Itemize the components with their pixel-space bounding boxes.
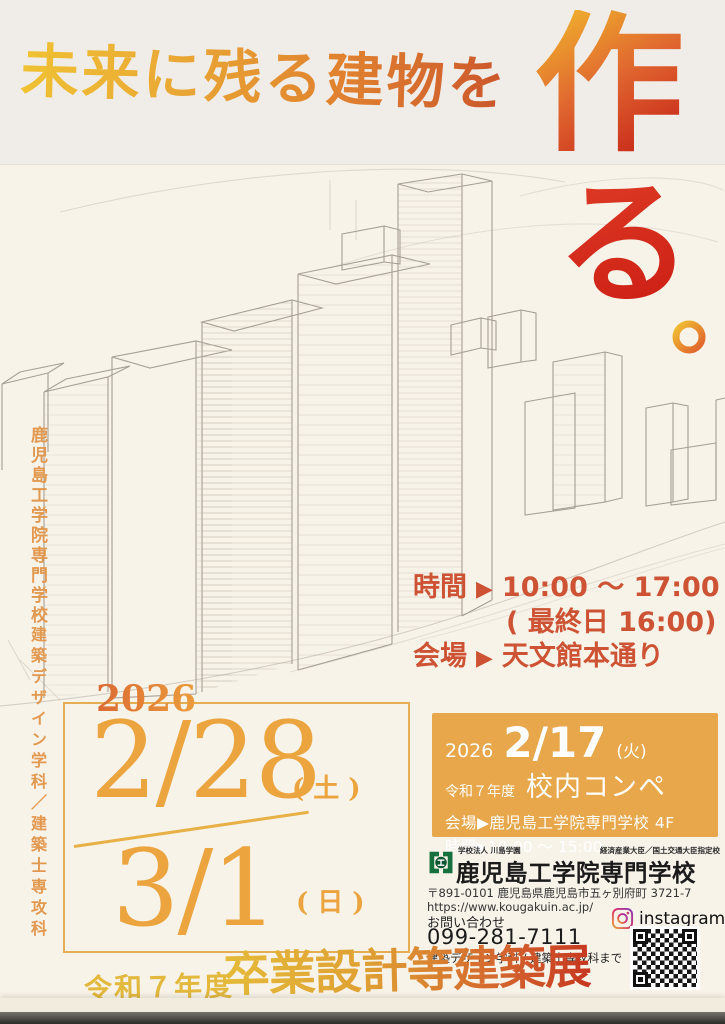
arrow-right-icon: ▶ [476,645,493,673]
photo-bottom-band [0,1012,725,1024]
main-date-1: 2/28 [90,708,320,814]
qr-finder-mark [633,972,648,987]
compe-title-row: 令和７年度 校内コンペ [445,765,705,804]
main-date-2-weekday: (日) [296,882,374,919]
footer-title: 卒業設計等建築展 [222,928,591,1005]
school-address: 〒891-0101 鹿児島県鹿児島市五ヶ別府町 3721-7 [427,887,691,901]
exhibition-poster: 未来に残る建物を 作 る 鹿児島工学院専門学校 建築デザイン学科／建築士専攻科 … [0,0,725,1024]
campus-compe-box: 2026 2/17 (火) 令和７年度 校内コンペ 会場▶鹿児島工学院専門学校 … [432,713,718,837]
qr-code [633,929,697,987]
compe-era: 令和７年度 [445,781,515,801]
event-venue-row: 会場 ▶ 天文館本通り [413,640,720,675]
time-value: 10:00 ～ 17:00 [502,571,720,606]
headline-text: 未来に残る建物を [20,24,542,122]
venue-label: 会場 [413,640,467,675]
headline-big-char-1: 作 [534,10,684,160]
school-logo-icon [427,849,455,876]
event-info: 時間 ▶ 10:00 ～ 17:00 ( 最終日 16:00) 会場 ▶ 天文館… [413,571,720,675]
instagram-label: instagram [639,909,725,929]
compe-title: 校内コンペ [526,765,666,804]
compe-venue: 会場▶鹿児島工学院専門学校 4F [445,811,705,833]
compe-date: 2/17 [503,722,606,764]
compe-weekday: (火) [616,737,646,762]
main-date-2: 3/1 [112,836,277,942]
time-note: ( 最終日 16:00) [506,606,716,641]
instagram-icon [611,907,634,930]
paper-bottom-edge [0,998,725,1013]
venue-value: 天文館本通り [502,640,664,675]
period-ring-icon [670,318,708,356]
compe-year: 2026 [445,740,493,762]
compe-date-row: 2026 2/17 (火) [445,722,705,764]
qr-finder-mark [682,929,697,944]
event-time-note-row: ( 最終日 16:00) [506,606,720,641]
time-label: 時間 [413,571,467,606]
headline-big-char-2: る [556,176,692,312]
vertical-school-name: 鹿児島工学院専門学校 [25,426,50,626]
instagram-row: instagram [611,907,725,930]
school-name: 鹿児島工学院専門学校 [456,854,696,888]
arrow-right-icon: ▶ [476,576,493,604]
qr-finder-mark [633,929,648,944]
event-time-row: 時間 ▶ 10:00 ～ 17:00 [413,571,720,606]
vertical-dept-name: 建築デザイン学科／建築士専攻科 [25,626,49,941]
main-date-1-weekday: (土) [292,768,370,805]
